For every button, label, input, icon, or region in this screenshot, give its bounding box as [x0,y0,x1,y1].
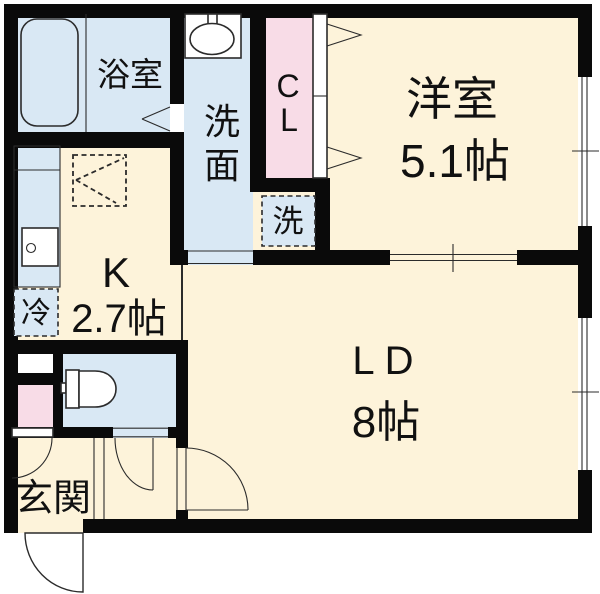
wall-mid-2 [253,250,390,265]
living-dining-label: LD [352,339,423,383]
wall-mid-3 [517,250,592,265]
front-door-opening [18,519,83,533]
front-door-swing [25,533,83,592]
western-room-size: 5.1帖 [400,135,510,187]
kitchen-sink-basin [22,228,58,266]
kitchen-label: K [102,249,130,296]
wall-under-closet [250,178,330,192]
kitchen-size: 2.7帖 [71,297,167,341]
entrance-label: 玄関 [15,478,91,520]
sink-icon [185,14,241,58]
wall-bottom [18,519,592,533]
floor-plan: 浴室 洗 面 C L 洗 洋室 5.1帖 K 2.7帖 冷 LD 8帖 玄関 [0,0,600,594]
toilet-tank [66,370,79,408]
toilet-icon [61,370,116,408]
wall-bath-washroom-upper [170,14,184,104]
wall-between-cabinets [4,373,55,385]
bathroom-door-gap [170,104,184,132]
wall-kitchen-washroom [170,132,184,252]
wall-left [4,4,18,533]
wall-under-kitchen [4,340,188,354]
refrigerator-label: 冷 [21,297,51,330]
kitchen-sink-icon [22,228,58,266]
front-door-arc [25,533,83,592]
living-dining-size: 8帖 [352,398,420,447]
wall-toilet-bottom-right [168,427,188,438]
bathroom-label: 浴室 [97,56,163,93]
wall-cabinet-toilet [53,352,63,438]
washroom-label-char-2: 面 [204,145,240,186]
wall-hall-ld-lower [176,510,188,521]
wall-mid-1 [170,250,188,265]
toilet-bowl [79,371,116,407]
window-glass [578,318,592,470]
shoe-cabinet-face [12,428,53,437]
laundry-label: 洗 [273,204,304,239]
wall-washroom-closet [250,14,266,192]
closet-label-char-2: L [280,102,298,138]
sink-bowl [190,24,234,55]
wall-top [4,4,592,18]
closet-label-char-1: C [276,68,299,104]
western-room-label: 洋室 [406,73,498,125]
washroom-label-char-1: 洗 [204,101,240,142]
